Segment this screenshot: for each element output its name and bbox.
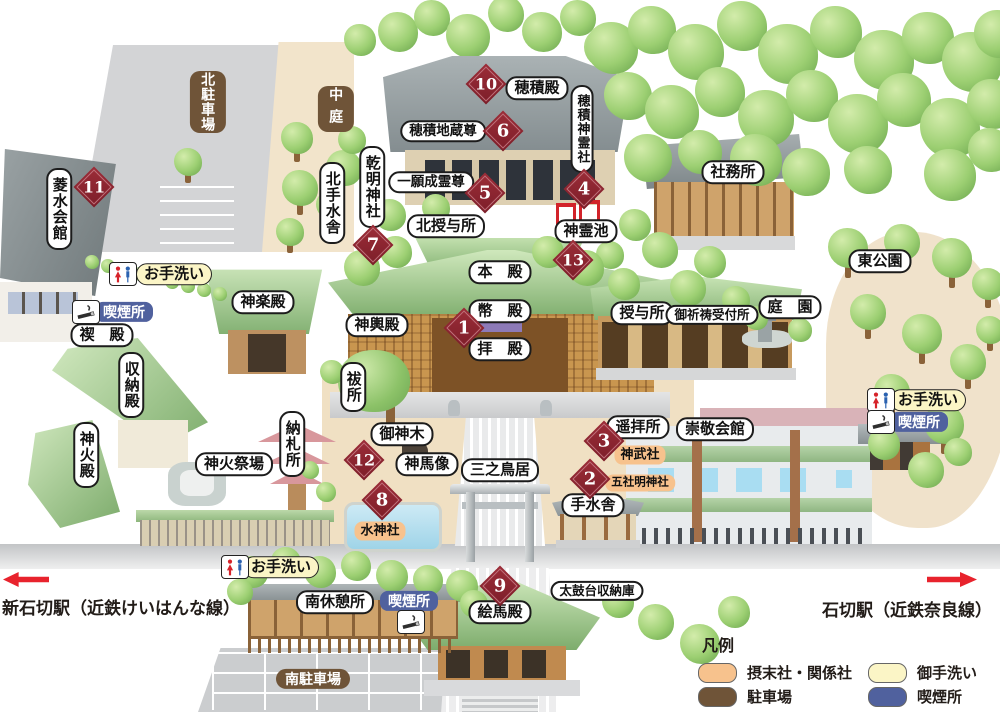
map-label-nosatsusho: 納札所 <box>279 411 305 477</box>
map-scenery <box>424 680 580 696</box>
legend-swatch-parking <box>698 687 737 707</box>
marker-number: 3 <box>590 427 619 456</box>
map-label-otearai-nw: お手洗い <box>136 263 212 285</box>
tree <box>976 316 1000 344</box>
map-label-shinkaden: 神火殿 <box>73 422 99 488</box>
smoking-icon <box>397 610 425 634</box>
marker-6: 6 <box>482 110 523 151</box>
marker-4: 4 <box>563 168 604 209</box>
tree <box>376 560 408 592</box>
arrow-right-icon <box>927 572 977 587</box>
map-label-sannotorii: 三之鳥居 <box>461 458 539 482</box>
map-label-hozumi-jizoson: 穂積地蔵尊 <box>400 120 486 142</box>
legend-item-smoking: 喫煙所 <box>868 686 962 707</box>
map-label-shinrei-ike: 神霊池 <box>554 219 617 243</box>
tree <box>944 438 972 466</box>
map-scenery <box>462 696 538 712</box>
tree <box>695 67 745 117</box>
tree <box>902 314 942 354</box>
map-scenery <box>140 520 330 546</box>
marker-3: 3 <box>583 420 624 461</box>
map-scenery <box>525 492 534 562</box>
map-label-kita-chushajo: 北駐車場 <box>190 71 226 133</box>
tree <box>446 14 490 58</box>
station-label-right: 石切駅（近鉄奈良線） <box>822 596 992 621</box>
tree <box>488 0 524 32</box>
map-label-minami-chushajo: 南駐車場 <box>276 669 350 689</box>
marker-2: 2 <box>569 458 610 499</box>
map-label-kitsuenjo-nw: 喫煙所 <box>95 302 153 322</box>
marker-13: 13 <box>552 239 593 280</box>
map-scenery <box>450 484 550 494</box>
map-label-shinyo-den: 神輿殿 <box>345 313 408 337</box>
tree <box>213 287 227 301</box>
marker-number: 8 <box>368 486 397 515</box>
map-scenery <box>556 540 640 548</box>
tree <box>950 344 986 380</box>
map-label-kitsuenjo-s: 喫煙所 <box>380 591 438 611</box>
map-label-jinmusha: 神武社 <box>614 446 665 465</box>
map-label-teien: 庭 園 <box>758 295 821 319</box>
map-label-nakaniwa: 中庭 <box>318 86 354 132</box>
map-label-hozumi-shinreisha: 穂積神霊社 <box>571 85 594 173</box>
tree <box>378 12 418 52</box>
map-scenery <box>692 430 702 542</box>
legend-label: 駐車場 <box>747 686 792 707</box>
map-label-otearai-e: お手洗い <box>890 389 966 411</box>
legend-label: 摂末社・関係社 <box>747 662 852 683</box>
tree <box>276 218 304 246</box>
tree <box>718 596 750 628</box>
map-label-otearai-s: お手洗い <box>243 556 319 578</box>
legend-swatch-sessha <box>698 663 737 683</box>
map-label-hozumi-den: 穂積殿 <box>505 76 568 100</box>
map-scenery <box>790 430 800 542</box>
tree <box>694 246 726 278</box>
tree <box>782 148 830 196</box>
smoking-icon <box>72 300 100 324</box>
marker-number: 6 <box>489 117 518 146</box>
tree <box>316 482 336 502</box>
map-scenery <box>118 420 188 468</box>
restroom-icon <box>867 388 895 412</box>
tree <box>908 452 944 488</box>
marker-number: 13 <box>559 246 588 275</box>
map-label-higashi-koen: 東公園 <box>848 249 911 273</box>
map-label-ryosui-kaikan: 菱水会館 <box>46 168 72 250</box>
restroom-icon <box>109 262 137 286</box>
tree <box>844 146 892 194</box>
legend-label: 御手洗い <box>917 662 977 683</box>
legend-swatch-smoking <box>868 687 907 707</box>
restroom-icon <box>221 555 249 579</box>
map-label-juyosho: 授与所 <box>610 301 673 325</box>
tree <box>85 255 99 269</box>
marker-1: 1 <box>443 307 484 348</box>
map-scenery <box>160 186 234 246</box>
map-scenery <box>448 400 460 416</box>
map-label-kita-juyosho: 北授与所 <box>407 214 485 238</box>
map-scenery <box>836 470 852 488</box>
tree <box>850 294 886 330</box>
legend-item-parking: 駐車場 <box>698 686 792 707</box>
tree <box>638 604 674 640</box>
tree <box>414 0 450 36</box>
map-label-temizusha: 手水舎 <box>561 493 624 517</box>
legend-item-toilet: 御手洗い <box>868 662 977 683</box>
map-label-kagura-den: 神楽殿 <box>231 290 294 314</box>
marker-5: 5 <box>464 172 505 213</box>
map-scenery <box>466 492 475 562</box>
legend-title: 凡例 <box>702 632 734 656</box>
map-scenery <box>654 182 794 240</box>
map-label-suijinja: 水神社 <box>354 522 405 541</box>
marker-number: 2 <box>576 465 605 494</box>
marker-number: 7 <box>359 231 388 260</box>
map-label-shamusho: 社務所 <box>701 160 764 184</box>
marker-9: 9 <box>479 565 520 606</box>
marker-number: 9 <box>486 572 515 601</box>
legend-item-sessha: 摂末社・関係社 <box>698 662 852 683</box>
tree <box>972 268 1000 300</box>
map-label-kitsuenjo-e: 喫煙所 <box>890 412 948 432</box>
marker-number: 10 <box>472 70 501 99</box>
legend-swatch-toilet <box>868 663 907 683</box>
tree <box>281 122 313 154</box>
shrine-map: 新石切駅（近鉄けいはんな線） 石切駅（近鉄奈良線） 凡例 摂末社・関係社駐車場御… <box>0 0 1000 712</box>
map-scenery <box>626 498 872 512</box>
map-scenery <box>8 292 78 314</box>
map-label-misogi-den: 禊 殿 <box>70 323 133 347</box>
map-scenery <box>540 400 552 416</box>
map-scenery <box>446 650 558 678</box>
marker-8: 8 <box>361 479 402 520</box>
marker-12: 12 <box>343 439 384 480</box>
tree <box>788 318 812 342</box>
tree <box>924 149 976 201</box>
map-label-haraedokoro: 祓所 <box>340 362 366 412</box>
tree <box>341 551 371 581</box>
tree <box>344 24 376 56</box>
station-label-left: 新石切駅（近鉄けいはんな線） <box>2 594 240 619</box>
marker-11: 11 <box>73 166 114 207</box>
map-label-honden: 本 殿 <box>468 260 531 284</box>
tree <box>642 232 678 268</box>
tree <box>608 268 640 300</box>
tree <box>282 170 318 206</box>
arrow-left-icon <box>3 572 49 587</box>
map-label-kita-temizusha: 北手水舎 <box>319 162 345 244</box>
marker-number: 11 <box>80 173 109 202</box>
tree <box>197 283 211 297</box>
map-label-taikodai-shunoko: 太鼓台収納庫 <box>550 581 643 601</box>
tree <box>174 148 202 176</box>
tree <box>624 134 672 182</box>
tree <box>932 238 972 278</box>
legend-label: 喫煙所 <box>917 686 962 707</box>
map-label-shunoden: 収納殿 <box>118 352 144 418</box>
map-label-kenmei-jinja: 乾明神社 <box>359 146 385 228</box>
smoking-icon <box>867 410 895 434</box>
marker-number: 12 <box>350 446 379 475</box>
map-label-gokito-uketsukesho: 御祈祷受付所 <box>665 305 758 325</box>
map-scenery <box>596 368 796 380</box>
map-label-sukei-kaikan: 崇敬会館 <box>676 417 754 441</box>
marker-10: 10 <box>465 63 506 104</box>
map-label-goshinboku: 御神木 <box>370 422 433 446</box>
marker-number: 1 <box>450 314 479 343</box>
marker-7: 7 <box>352 224 393 265</box>
map-label-ichigan-joreison: 一願成霊尊 <box>388 171 474 193</box>
map-label-shinka-saijo: 神火祭場 <box>195 452 273 476</box>
map-scenery <box>630 528 870 544</box>
map-scenery <box>248 636 458 653</box>
map-label-gosha-myojinja: 五社明神社 <box>605 475 675 492</box>
map-label-minami-kyukeisho: 南休憩所 <box>296 590 374 614</box>
marker-number: 4 <box>570 175 599 204</box>
map-label-shinba-zo: 神馬像 <box>395 452 458 476</box>
tree <box>522 12 562 52</box>
marker-number: 5 <box>471 179 500 208</box>
map-scenery <box>248 334 286 372</box>
tree <box>670 270 706 306</box>
